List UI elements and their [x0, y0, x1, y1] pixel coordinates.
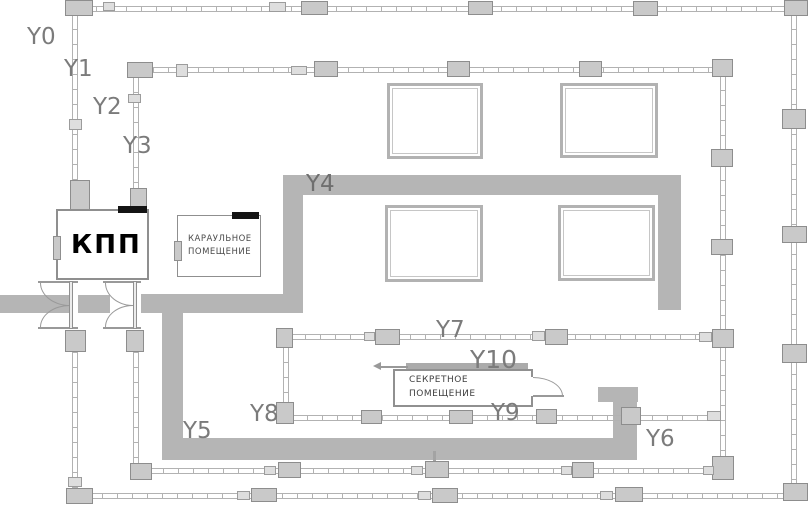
label-y0: Y0 [27, 26, 56, 49]
fence-corner-post [784, 0, 808, 16]
fence-sensor [703, 466, 714, 475]
fence-corner-post [712, 59, 733, 77]
label-y10: Y10 [470, 347, 517, 372]
fence-post [711, 149, 733, 167]
fence-post [545, 329, 568, 345]
storage-building [387, 83, 483, 159]
secret-room-label-line2: ПОМЕЩЕНИЕ [409, 388, 476, 402]
outer-fence-right [791, 14, 797, 486]
fence-post [621, 407, 641, 425]
fence-sensor [561, 466, 572, 475]
zone-fence-y7 [290, 334, 714, 340]
road-segment [141, 294, 303, 313]
fence-post [278, 462, 301, 478]
secret-room-door-arc [533, 377, 563, 396]
route-y10-pointer-line [380, 366, 408, 368]
fence-corner-post [712, 456, 734, 480]
storage-building [385, 205, 483, 282]
fence-sensor [128, 94, 141, 103]
fence-post [432, 488, 458, 503]
fence-corner-post [66, 488, 93, 504]
inner-fence-right [720, 75, 726, 458]
fence-sensor [69, 119, 82, 130]
label-y7: Y7 [436, 319, 465, 342]
checkpoint-window [53, 236, 61, 260]
guard-room-label-line2: ПОМЕЩЕНИЕ [188, 246, 252, 259]
label-y3: Y3 [123, 135, 152, 158]
secret-room-label-line1: СЕКРЕТНОЕ [409, 374, 476, 388]
fence-post [536, 409, 557, 424]
fence-post [361, 410, 382, 424]
fence-sensor [699, 332, 712, 342]
route-y4-left-column [283, 175, 303, 295]
fence-post [782, 226, 807, 243]
fence-post [615, 487, 643, 502]
label-y8: Y8 [250, 403, 279, 426]
route-y4-band [283, 175, 681, 195]
fence-post [425, 461, 449, 478]
fence-sensor [264, 466, 276, 475]
fence-sensor [364, 332, 375, 341]
route-y5-band [162, 438, 637, 460]
zone-fence-y8 [283, 347, 289, 404]
inner-fence-top [138, 67, 722, 73]
fence-post [782, 344, 807, 363]
fence-post [65, 330, 86, 352]
guard-room-label-line1: КАРАУЛЬНОЕ [188, 233, 252, 246]
fence-corner-post [276, 328, 293, 348]
route-y10-arrow-icon [373, 362, 381, 370]
facility-map: КПП КАРАУЛЬНОЕ ПОМЕЩЕНИЕ СЕКРЕТНОЕ ПОМЕЩ… [0, 0, 810, 505]
fence-sensor [411, 466, 423, 475]
fence-post [126, 330, 144, 352]
checkpoint-label: КПП [71, 230, 142, 260]
road-segment [78, 295, 110, 313]
secret-room-door-leaf [533, 395, 564, 397]
fence-sensor [176, 64, 188, 77]
fence-post [468, 1, 493, 15]
fence-sensor [269, 2, 286, 12]
guard-room-building: КАРАУЛЬНОЕ ПОМЕЩЕНИЕ [177, 215, 261, 277]
label-y1: Y1 [64, 58, 93, 81]
outer-gate-leaf [69, 281, 73, 329]
guard-room-door-marker [232, 212, 259, 219]
outer-fence-left-upper [72, 14, 78, 182]
fence-sensor [103, 2, 115, 11]
fence-post [579, 61, 602, 77]
fence-post [633, 1, 658, 16]
outer-fence-top [66, 6, 793, 12]
route-y6-hook [598, 387, 638, 402]
fence-sensor [600, 491, 613, 500]
inner-fence-left-lower [133, 352, 139, 465]
label-y4: Y4 [306, 173, 335, 196]
fence-corner-post [130, 463, 152, 480]
fence-post [375, 329, 400, 345]
fence-sensor [532, 331, 545, 341]
fence-post [301, 1, 328, 15]
route-y4-right-column [658, 175, 681, 310]
fence-sensor [291, 66, 307, 75]
checkpoint-door-marker [118, 206, 147, 213]
fence-sensor [418, 491, 431, 500]
label-y6: Y6 [646, 428, 675, 451]
label-y5: Y5 [183, 420, 212, 443]
checkpoint-building: КПП [56, 209, 149, 280]
fence-post [449, 410, 473, 424]
guard-room-window [174, 241, 182, 261]
fence-post [782, 109, 806, 129]
fence-corner-post [65, 0, 93, 16]
fence-sensor [707, 411, 721, 421]
fence-corner-post [127, 62, 153, 78]
fence-post [314, 61, 338, 77]
inner-gate-leaf [133, 281, 137, 329]
fence-post [447, 61, 470, 77]
fence-post [70, 180, 90, 210]
storage-building [558, 205, 655, 281]
fence-sensor [68, 477, 82, 487]
outer-fence-left-lower [72, 352, 78, 490]
label-y9: Y9 [491, 402, 520, 425]
fence-post [712, 329, 734, 348]
fence-post [572, 462, 594, 478]
label-y2: Y2 [93, 96, 122, 119]
storage-building [560, 83, 658, 158]
fence-post [711, 239, 733, 255]
fence-corner-post [783, 483, 808, 501]
fence-post [251, 488, 277, 502]
fence-sensor [237, 491, 250, 500]
